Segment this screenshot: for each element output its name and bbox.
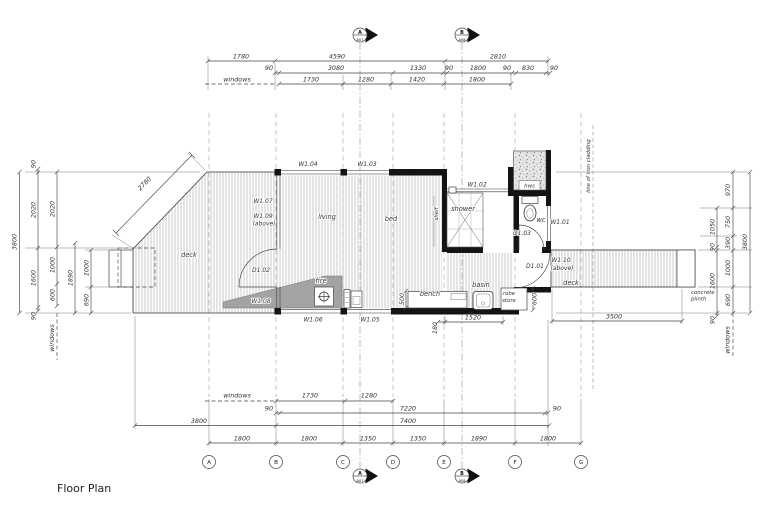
dim-label: 1420 [409,76,425,84]
room-label-living: living [318,213,336,221]
dim-label: 1520 [465,314,481,322]
concrete-plinth [677,250,695,287]
dim-label: 90 [265,64,273,72]
dim-label: 600 [531,293,539,305]
tag-d101: D1.01 [526,263,544,270]
hws-label: hws [524,184,535,190]
dim-label: 1000 [49,257,57,273]
dim-label: 1730 [302,392,318,400]
windows-note: windows [48,324,56,352]
dim-label: 90 [550,64,558,72]
dim-label: 1600 [30,270,38,286]
dim-label: 1350 [410,435,426,443]
section-marker-a-top: A A07 [353,28,378,43]
dim-label: 7220 [400,405,416,413]
section-marker-a-bottom: A A07 [353,469,378,484]
shower-tray [447,187,483,247]
dim-label: 3800 [11,234,19,250]
floor-plan-drawing: line of iron cladding [0,0,768,530]
tag-d103: D1.03 [513,230,531,237]
section-marker-b-bottom: B A08 [455,469,480,484]
dim-label: 180 [431,322,439,334]
dim-label: 90 [265,405,273,413]
dim-label: 1280 [361,392,377,400]
windows-note: windows [724,326,732,354]
tag-w110-above: (above) [550,265,573,272]
appliance-2 [351,291,362,308]
dim-label: 4590 [329,53,345,61]
tag-w103: W1.03 [357,161,376,168]
room-label-shower: shower [451,205,476,213]
room-label-fire: fire [315,277,326,285]
dim-label: 1800 [470,64,486,72]
floor-plan-sheet: line of iron cladding [0,0,768,530]
dim-label: 90 [445,64,453,72]
dim-label: 2020 [49,201,57,217]
dim-label: 90 [30,160,38,168]
grid-bubble-label: A [207,460,211,466]
bottom-dimension-labels: windows 1730 1280 90 7220 90 3800 7400 1… [191,392,561,443]
marker-letter: B [460,471,464,477]
note-plinth: plinth [690,297,707,303]
dim-label: 600 [49,289,57,301]
dim-label: 1330 [410,64,426,72]
dim-label: 1050 [709,219,717,235]
tag-w102: W1.02 [467,182,486,189]
marker-sheet: A08 [458,479,466,483]
grid-bubble-label: D [391,460,395,466]
room-label-deck-left: deck [181,251,198,259]
dim-label: 7400 [400,417,416,425]
top-dimension-labels: 1780 4590 2810 90 3080 1330 90 1800 90 8… [223,53,558,84]
dim-label: 3800 [741,234,749,250]
deck-left [109,172,281,313]
section-marker-b-top: B A08 [455,28,480,43]
dim-label: 750 [724,216,732,228]
dim-label: 1890 [471,435,487,443]
tag-d102: D1.02 [252,267,270,274]
marker-sheet: A07 [356,38,363,42]
windows-note: windows [223,76,251,84]
basin [473,292,493,310]
dim-label: 90 [503,64,511,72]
tag-w109-above: (above) [252,221,275,228]
dim-label: 2810 [490,53,506,61]
left-dimension-labels: 3800 90 2020 1600 90 2020 1000 600 windo… [11,160,91,352]
marker-letter: B [460,30,464,36]
dim-label: 970 [724,184,732,196]
dim-label: 1800 [540,435,556,443]
room-label-basin: basin [472,281,490,289]
tag-w101: W1.01 [550,219,569,226]
dim-label: 3800 [191,417,207,425]
grid-bubble-label: E [442,460,446,466]
tag-w105: W1.05 [360,317,379,324]
drawing-title: Floor Plan [57,482,111,495]
dim-label: 1800 [301,435,317,443]
dim-label: 1800 [234,435,250,443]
dim-label: 90 [553,405,561,413]
dim-label: 830 [522,64,534,72]
grid-bubble-label: B [274,460,278,466]
dim-label: 1350 [360,435,376,443]
tag-w109: W1.09 [253,213,272,220]
dim-label: 1000 [83,260,91,276]
tag-w107: W1.07 [253,198,272,205]
dim-label: 1600 [709,273,717,289]
room-label-robe: robe [503,291,516,297]
dim-label: 690 [724,294,732,306]
dim-label: 390 [724,237,732,249]
dim-label: 3500 [606,313,622,321]
dim-label: 1000 [724,260,732,276]
room-label-wc: wc [536,216,545,224]
room-label-shelf: shelf [434,206,440,220]
dim-label: 2020 [30,202,38,218]
grid-bubble-label: C [341,460,345,466]
dim-label: 1280 [358,76,374,84]
room-label-store: store [502,298,516,304]
windows-note: windows [223,392,251,400]
room-label-bed: bed [385,215,398,223]
dim-label: 500 [398,293,406,305]
dim-label: 90 [709,316,717,324]
iron-cladding-label: line of iron cladding [586,139,592,193]
tag-w106: W1.06 [303,317,322,324]
dim-label: 1730 [303,76,319,84]
note-concrete: concrete [691,290,715,296]
dim-label: 1890 [67,270,75,286]
dim-label: 2780 [136,175,153,192]
dim-label: 690 [83,294,91,306]
dim-label: 1800 [469,76,485,84]
dim-label: 90 [30,312,38,320]
grid-bubble-label: G [579,460,583,466]
tag-w110: W1.10 [551,257,570,264]
room-label-bench: bench [420,290,440,298]
shower-mixer [449,187,456,193]
tag-w104: W1.04 [298,161,317,168]
marker-sheet: A07 [356,479,363,483]
room-label-deck-right: deck [563,279,580,287]
marker-letter: A [358,30,362,36]
tag-w108: W1.08 [251,298,270,305]
dim-label: 3080 [328,64,344,72]
grid-bubble-label: F [513,460,516,466]
right-dimension-labels: 1050 90 1600 90 970 750 390 1000 690 380… [709,184,750,354]
marker-sheet: A08 [458,38,466,42]
dim-label: 1780 [233,53,249,61]
dim-label: 90 [709,243,717,251]
grid-bubbles: A B C D E F G [203,456,588,469]
hws-unit: hws [514,151,547,190]
marker-letter: A [358,471,362,477]
